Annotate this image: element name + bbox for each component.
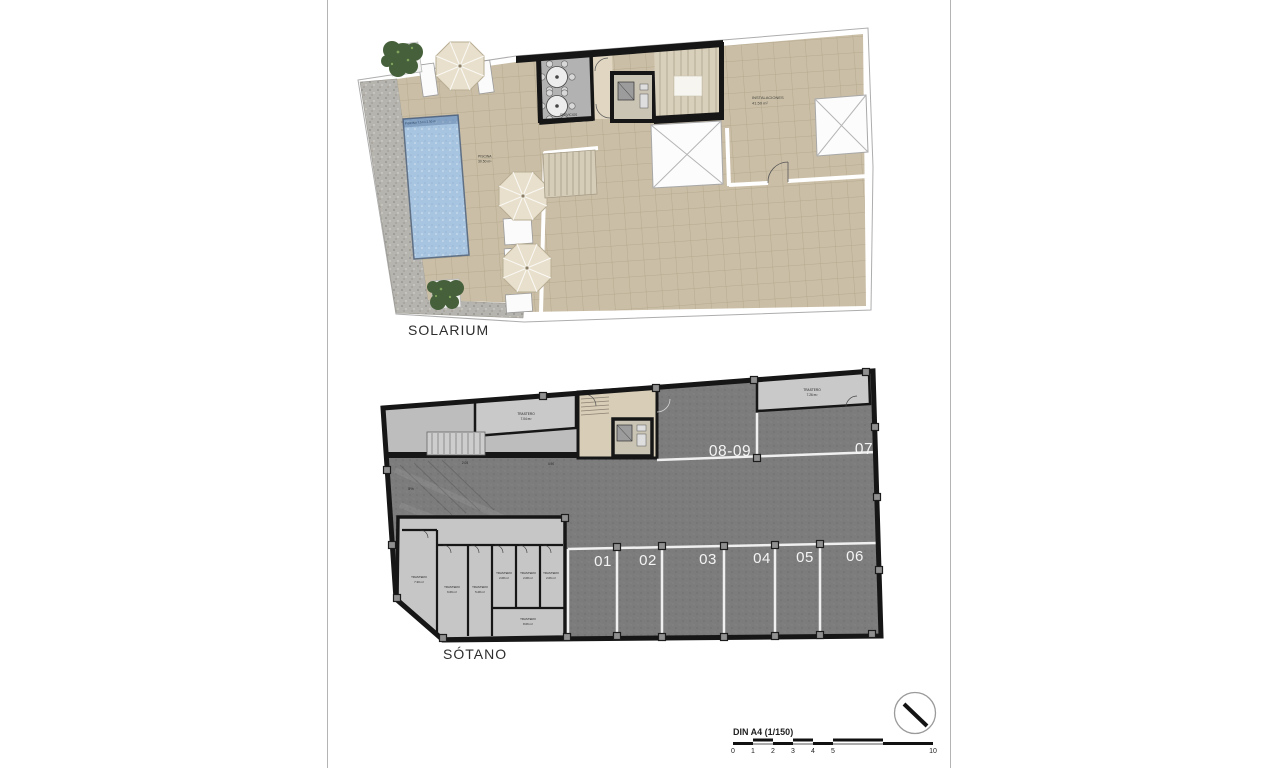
ramp-slope-label: 5% <box>408 486 414 491</box>
scale-label: DIN A4 (1/150) <box>733 727 793 737</box>
trastero-label: TRASTERO <box>520 571 536 575</box>
trastero-label: TRASTERO <box>472 585 488 589</box>
umbrella-middle <box>499 172 547 220</box>
floor-plan-sheet: PISCINA 7.50 x 2.50 m PISCINA 30.50 m² <box>0 0 1280 768</box>
scale-tick: 2 <box>771 748 775 755</box>
scale-tick: 1 <box>751 748 755 755</box>
spot-number: 04 <box>753 550 771 567</box>
trastero-label: TRASTERO <box>517 412 535 416</box>
umbrella-top <box>436 42 484 90</box>
basement-elevator <box>613 419 652 456</box>
pool-area-label-1: PISCINA <box>478 155 492 159</box>
scale-tick: 5 <box>831 748 835 755</box>
solarium-plan: PISCINA 7.50 x 2.50 m PISCINA 30.50 m² <box>358 28 873 338</box>
trastero-area: 5.28 m² <box>475 590 485 594</box>
sotano-title: SÓTANO <box>443 646 507 662</box>
skylight-stairwell <box>651 121 723 188</box>
trastero-area: 6.69 m² <box>447 590 457 594</box>
trastero-label: TRASTERO <box>543 571 559 575</box>
solarium-title: SOLARIUM <box>408 322 489 338</box>
spot-number: 03 <box>699 551 717 568</box>
stair-landing <box>674 76 702 96</box>
umbrella-bottom <box>503 244 551 292</box>
scale-tick: 0 <box>731 748 735 755</box>
trastero-area: 2.08 m² <box>523 576 533 580</box>
trastero-label: TRASTERO <box>411 575 427 579</box>
main-stairs <box>654 42 722 120</box>
plant-top-left <box>381 41 423 77</box>
scale-tick: 10 <box>929 748 937 755</box>
spot-number: 02 <box>639 552 657 569</box>
services-room: SERVICIOS <box>539 53 593 123</box>
spot-number: 05 <box>796 549 814 566</box>
services-label: SERVICIOS <box>560 113 577 117</box>
dim-label-2: 4.90 <box>548 462 554 466</box>
basement-core <box>578 387 657 458</box>
scale-tick: 4 <box>811 748 815 755</box>
sotano-plan: TRASTERO 7.04 m² <box>383 369 883 663</box>
dim-label-1: 2.05 <box>462 461 468 465</box>
trastero-label: TRASTERO <box>803 388 821 392</box>
installations-label-2: 41.50 m² <box>752 101 768 106</box>
trastero-area: 7.26 m² <box>807 393 818 397</box>
basement-stairs <box>427 432 485 455</box>
trastero-label: TRASTERO <box>444 585 460 589</box>
trastero-label: TRASTERO <box>520 617 536 621</box>
spot-number: 06 <box>846 548 864 565</box>
scale-tick: 3 <box>791 748 795 755</box>
pool: PISCINA 7.50 x 2.50 m <box>403 115 469 259</box>
trastero-area: 7.30 m² <box>414 580 424 584</box>
installations-label-1: INSTALACIONES <box>752 95 784 100</box>
spot-number: 07 <box>855 441 873 458</box>
spot-number: 01 <box>594 553 612 570</box>
skylight-right <box>815 95 868 156</box>
trastero-area: 2.06 m² <box>546 576 556 580</box>
trastero-area: 7.04 m² <box>521 417 532 421</box>
plant-bottom-left <box>427 279 464 310</box>
terrace-stairs <box>543 150 597 198</box>
pool-area-label-2: 30.50 m² <box>478 160 492 164</box>
trastero-area: 8.06 m² <box>523 622 533 626</box>
spot-number: 08-09 <box>709 443 751 460</box>
elevator-shaft <box>612 73 654 121</box>
trastero-label: TRASTERO <box>496 571 512 575</box>
trastero-area: 2.08 m² <box>499 576 509 580</box>
north-arrow <box>895 693 936 734</box>
